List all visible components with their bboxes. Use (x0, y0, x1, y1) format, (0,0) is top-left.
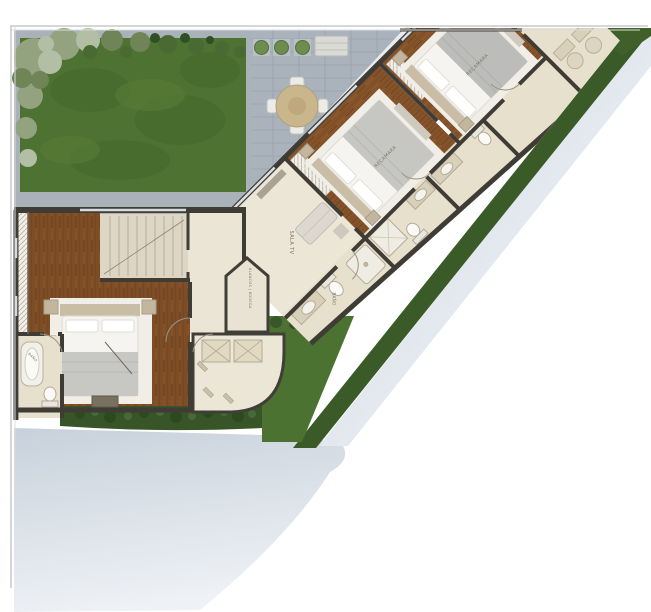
tv-room-label: SALA TV (288, 231, 294, 255)
storage-room: BLANCOS | BODEGA (226, 258, 268, 332)
nightstand (44, 300, 58, 314)
nightstand (142, 300, 156, 314)
planters (253, 39, 311, 56)
storage-label: BLANCOS | BODEGA (248, 268, 252, 309)
toilet-bowl (44, 387, 56, 401)
wing-bath-label: BAÑO (332, 292, 337, 305)
patio-bench (315, 36, 348, 56)
floor-plan-canvas: RECAMARA RECAMARA SALA TV BAÑO (0, 0, 651, 612)
garden (12, 28, 258, 214)
master-block: BAÑO BLANCOS | BODEGA (14, 210, 284, 420)
master-bathroom: BAÑO (19, 336, 62, 418)
chair (318, 99, 328, 113)
floor-plan-svg: RECAMARA RECAMARA SALA TV BAÑO (0, 0, 651, 612)
dresser (92, 396, 118, 407)
bush (270, 316, 282, 328)
toilet-tank (42, 401, 58, 407)
table-center (288, 97, 306, 115)
